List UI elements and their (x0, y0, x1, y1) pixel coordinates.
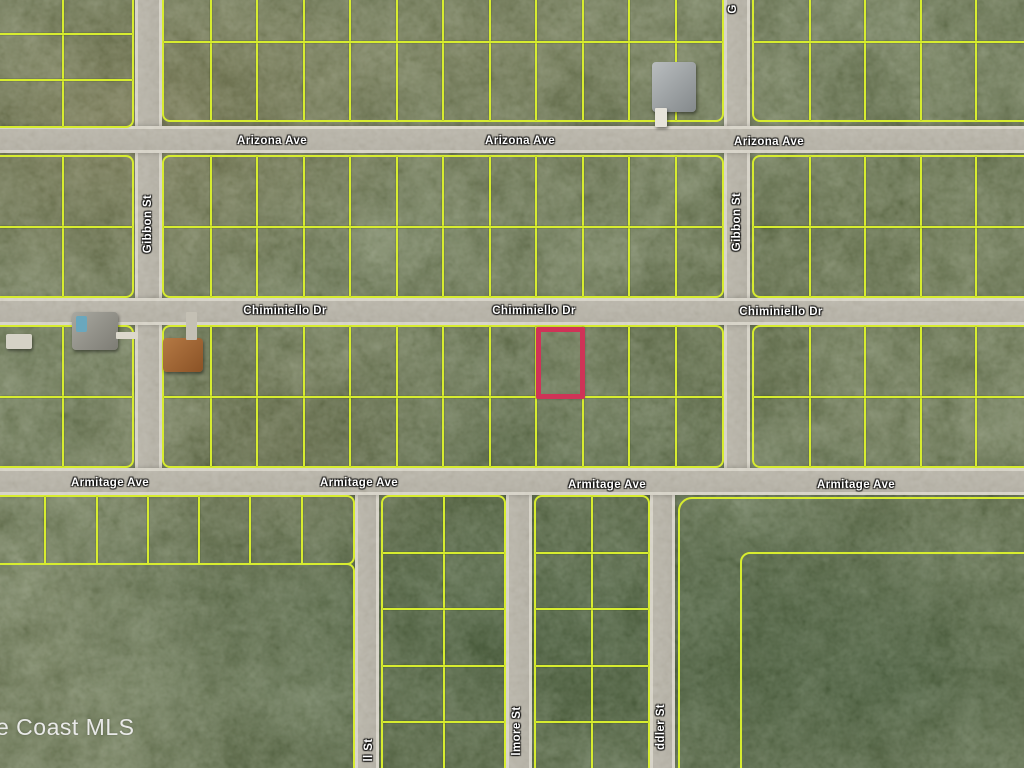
driveway-left-house (116, 332, 138, 339)
parcel-block (381, 495, 506, 768)
lot-line (349, 0, 351, 120)
parcel-block (0, 495, 355, 565)
lot-line (754, 396, 1024, 398)
satellite-parcel-map[interactable]: Arizona AveArizona AveArizona AveChimini… (0, 0, 1024, 768)
lot-line (536, 721, 648, 723)
lot-line (256, 0, 258, 120)
street-label-chiminiello: Chiminiello Dr (243, 305, 327, 317)
lot-line (864, 0, 866, 120)
lot-line (164, 226, 722, 228)
lot-line (443, 497, 445, 768)
lot-line (920, 0, 922, 120)
lot-line (198, 497, 200, 563)
street-label-armitage: Armitage Ave (320, 477, 398, 489)
parcel-block (534, 495, 650, 768)
lot-line (442, 0, 444, 120)
lot-line (147, 497, 149, 563)
lot-line (396, 0, 398, 120)
lot-line (383, 552, 504, 554)
street-label-arizona: Arizona Ave (237, 135, 307, 147)
lot-line (0, 33, 132, 35)
street-label-armitage: Armitage Ave (568, 479, 646, 491)
parcel-block (752, 325, 1024, 468)
lot-line (489, 0, 491, 120)
driveway-top-right (655, 108, 667, 127)
lot-line (591, 497, 593, 768)
lot-line (582, 0, 584, 120)
watermark: e Coast MLS (0, 714, 134, 741)
street-label-ddler_partial: ddler St (655, 704, 667, 750)
parcel-block (162, 325, 724, 468)
street-label-gibbon: Gibbon St (731, 193, 743, 252)
street-label-arizona: Arizona Ave (734, 136, 804, 148)
lot-line (164, 396, 722, 398)
lot-line (383, 665, 504, 667)
lot-line (754, 41, 1024, 43)
lot-line (535, 0, 537, 120)
street-label-gibbon: Gibbon St (142, 195, 154, 254)
lot-line (975, 0, 977, 120)
highlighted-parcel[interactable] (536, 327, 585, 399)
parcel-block (740, 552, 1024, 768)
lot-line (383, 721, 504, 723)
parcel-block (0, 0, 134, 128)
lot-line (301, 497, 303, 563)
lot-line (809, 0, 811, 120)
lot-line (536, 608, 648, 610)
lot-line (0, 226, 132, 228)
pool-left-house (76, 316, 87, 332)
street-label-ll_partial: ll St (363, 738, 375, 761)
structure-far-left (6, 334, 32, 349)
street-label-arizona: Arizona Ave (485, 135, 555, 147)
lot-line (754, 226, 1024, 228)
parcel-block (0, 155, 134, 298)
parcel-block (162, 155, 724, 298)
lot-line (164, 41, 722, 43)
parcel-block (752, 155, 1024, 298)
house-orange-roof (163, 338, 203, 372)
lot-line (536, 665, 648, 667)
lot-line (96, 497, 98, 563)
lot-line (210, 0, 212, 120)
parcel-block (752, 0, 1024, 122)
driveway-orange-house (186, 312, 197, 340)
lot-line (628, 0, 630, 120)
lot-line (249, 497, 251, 563)
lot-line (536, 552, 648, 554)
street-label-chiminiello: Chiminiello Dr (739, 306, 823, 318)
lot-line (0, 79, 132, 81)
street-label-armitage: Armitage Ave (817, 479, 895, 491)
street-label-lmore_partial: lmore St (511, 706, 523, 755)
street-label-chiminiello: Chiminiello Dr (492, 305, 576, 317)
house-top-right (652, 62, 696, 112)
lot-line (0, 396, 132, 398)
parcel-block (162, 0, 724, 122)
lot-line (303, 0, 305, 120)
street-label-gibbon_partial_top: G (727, 4, 739, 13)
lot-line (44, 497, 46, 563)
lot-line (383, 608, 504, 610)
street-label-armitage: Armitage Ave (71, 477, 149, 489)
lot-line (62, 0, 64, 126)
